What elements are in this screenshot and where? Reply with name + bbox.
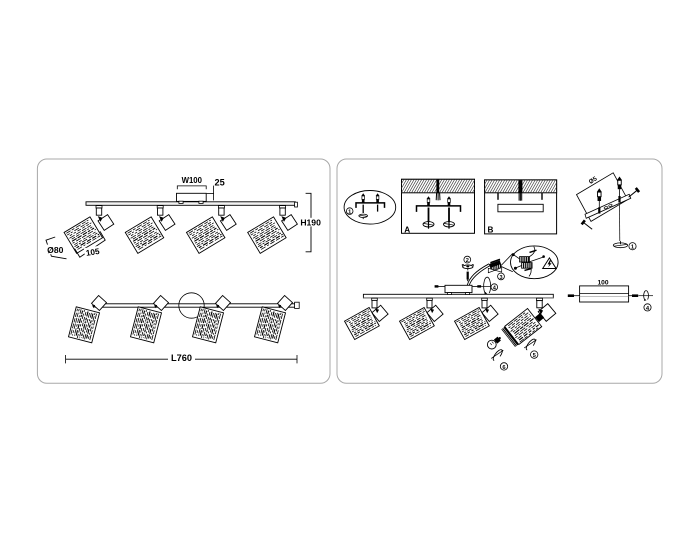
svg-text:H190: H190 [300, 217, 321, 227]
svg-text:1: 1 [348, 209, 351, 215]
svg-text:3: 3 [499, 275, 502, 281]
svg-text:L760: L760 [171, 353, 192, 363]
svg-text:25: 25 [215, 177, 225, 187]
svg-text:Ø80: Ø80 [47, 245, 63, 255]
svg-text:A: A [404, 225, 410, 234]
svg-text:2: 2 [466, 258, 469, 264]
svg-text:100: 100 [597, 280, 608, 287]
svg-text:B: B [488, 225, 494, 234]
svg-text:W100: W100 [182, 176, 203, 185]
